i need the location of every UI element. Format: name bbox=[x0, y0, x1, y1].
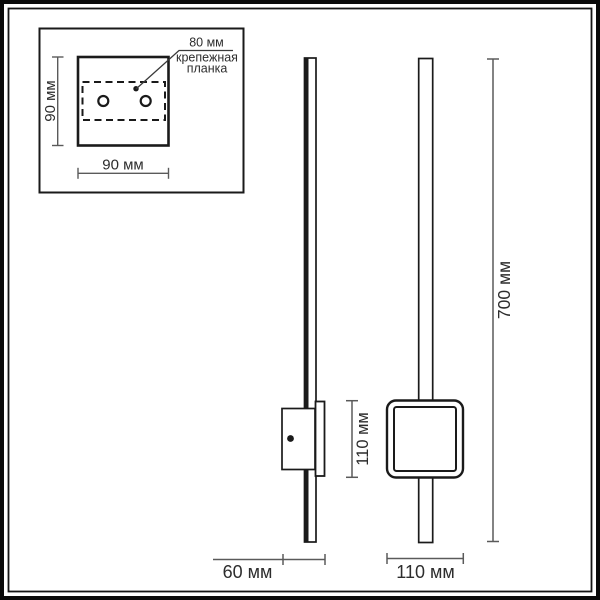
lamp-dimension-diagram: 80 мм крепежная планка 90 мм 90 мм bbox=[0, 0, 600, 600]
wall-plate-side bbox=[316, 402, 325, 477]
label-bracket-width: 80 мм bbox=[189, 36, 224, 50]
shade-frame-inner bbox=[394, 407, 456, 471]
screw-hole-left bbox=[98, 96, 108, 106]
label-bracket-name-line2: планка bbox=[187, 62, 228, 76]
detail-inset: 80 мм крепежная планка 90 мм 90 мм bbox=[40, 29, 244, 193]
label-plate-height: 90 мм bbox=[42, 80, 59, 121]
screw-knob bbox=[287, 435, 294, 442]
label-plate-width: 90 мм bbox=[102, 157, 143, 174]
mounting-bracket-side bbox=[282, 409, 315, 470]
label-fixture-depth: 60 мм bbox=[223, 562, 273, 582]
label-lamp-length: 700 мм bbox=[494, 261, 514, 319]
label-shade-width: 110 мм bbox=[396, 562, 454, 582]
label-shade-height: 110 мм bbox=[354, 412, 372, 466]
screw-hole-right bbox=[141, 96, 151, 106]
mounting-plate-face bbox=[78, 57, 169, 146]
